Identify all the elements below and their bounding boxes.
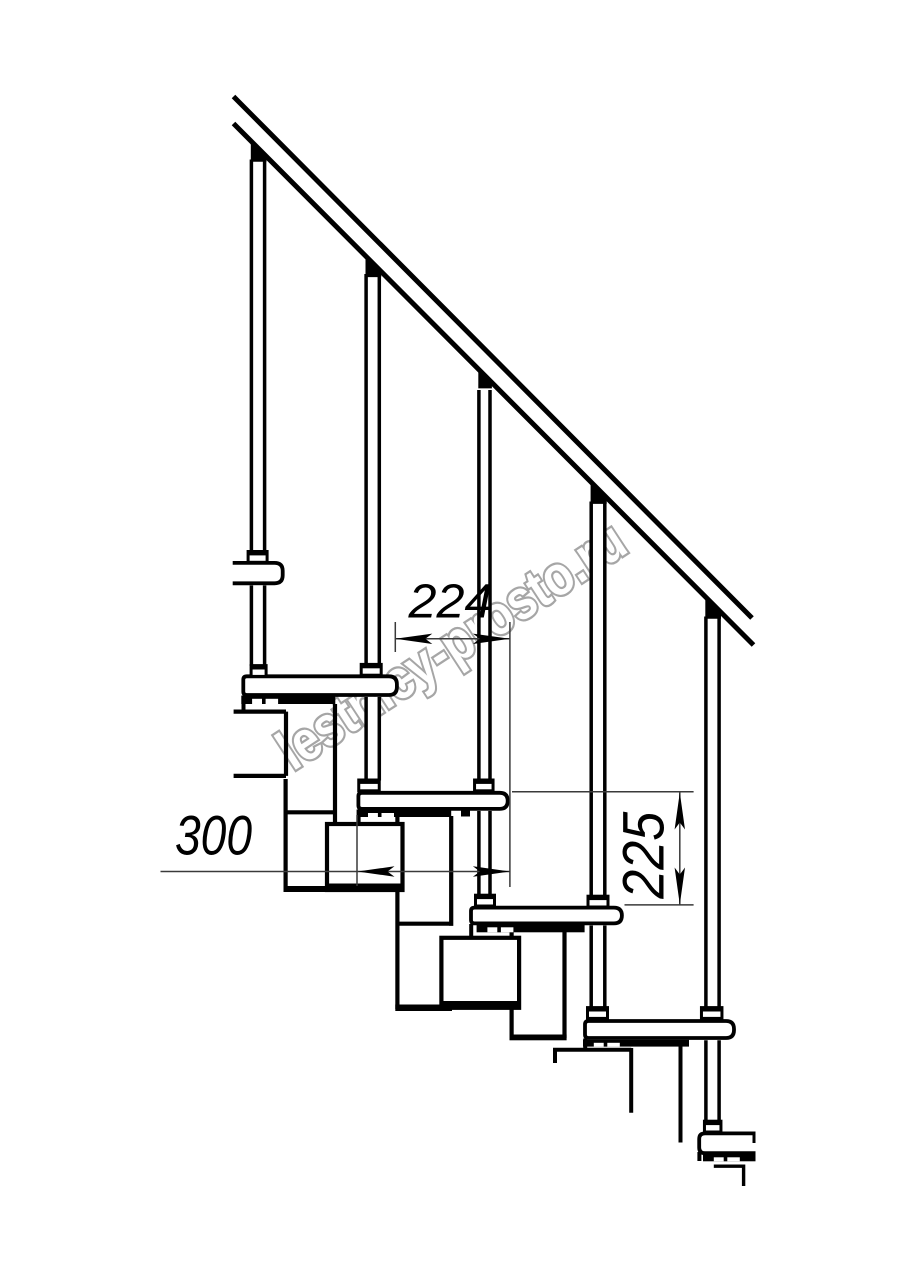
- svg-text:lestnicy-prosto.ru: lestnicy-prosto.ru: [265, 508, 637, 781]
- svg-text:225: 225: [612, 811, 677, 900]
- svg-text:300: 300: [175, 804, 252, 867]
- svg-text:224: 224: [407, 576, 492, 629]
